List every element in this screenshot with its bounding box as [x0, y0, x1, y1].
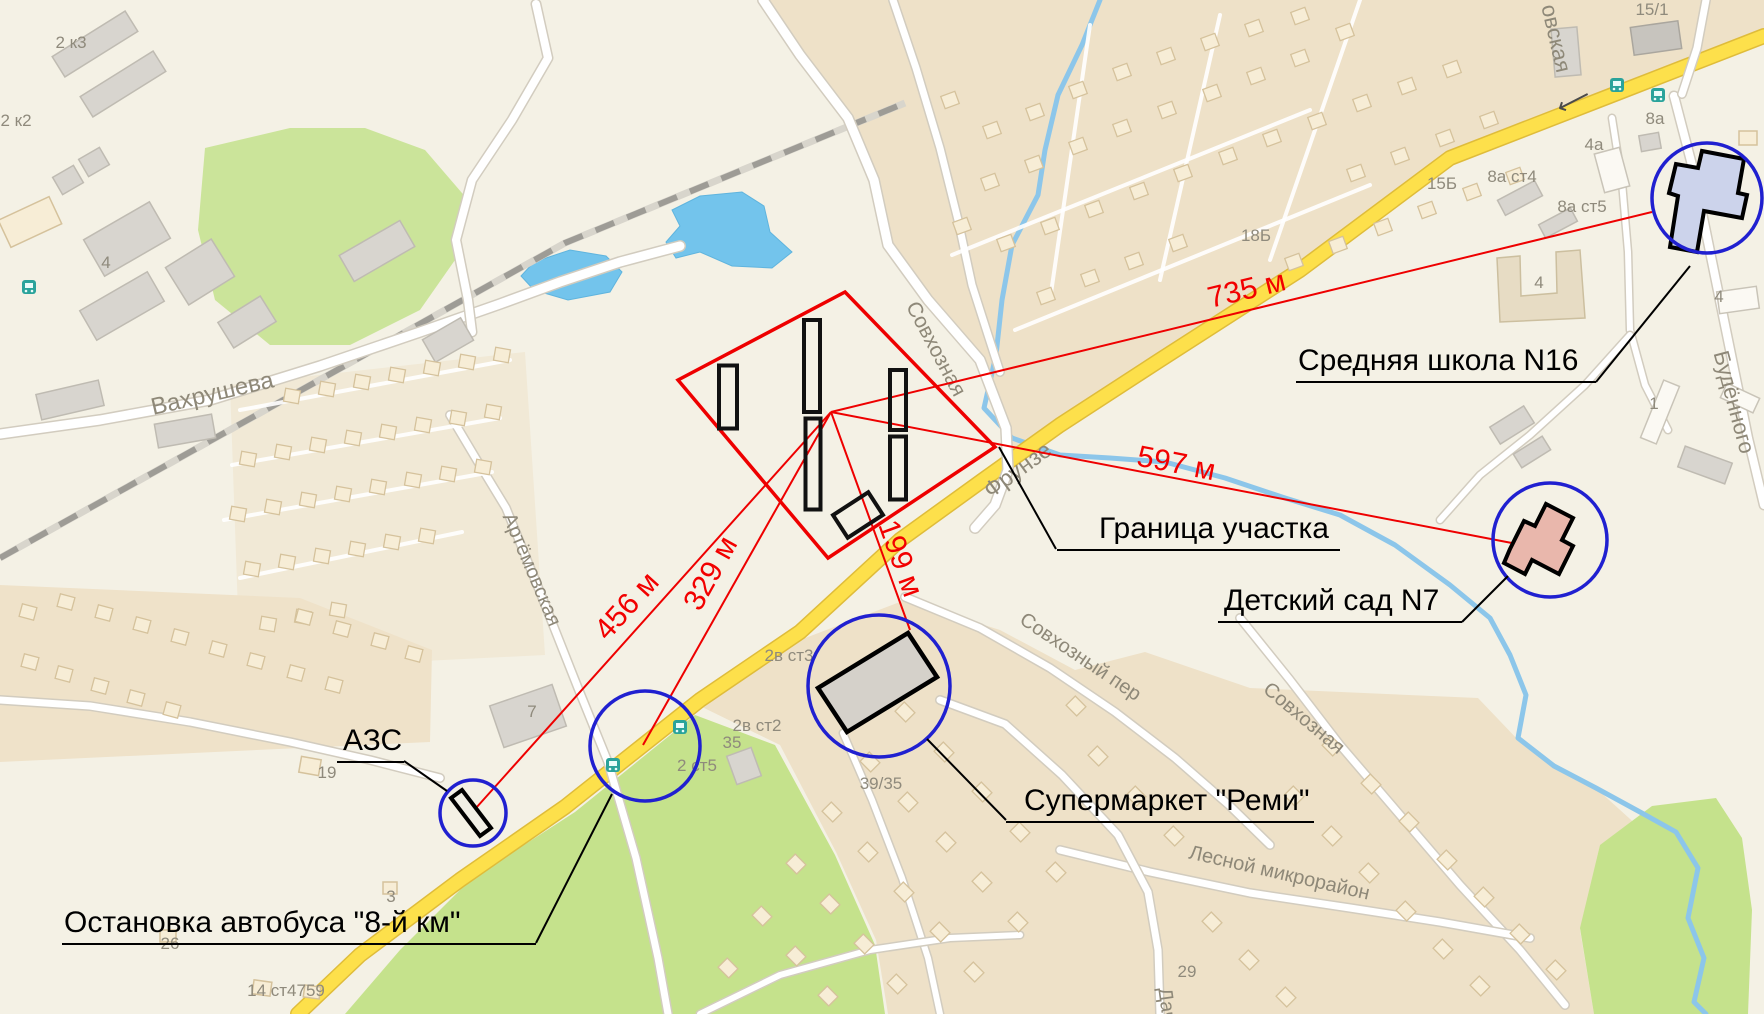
address-label: 8а ст5	[1557, 197, 1606, 216]
address-label: 35	[723, 733, 742, 752]
cottage	[418, 528, 435, 543]
cottage	[274, 444, 291, 459]
cottage	[313, 548, 330, 563]
cottage	[239, 451, 256, 466]
cottage	[369, 479, 386, 494]
cottage	[264, 499, 281, 514]
address-label: 8а	[1646, 109, 1665, 128]
address-label: 18Б	[1241, 226, 1271, 245]
address-label: 3	[386, 887, 395, 906]
bus-stop-icon	[1610, 78, 1624, 92]
label-bus-stop: Остановка автобуса "8-й км"	[62, 906, 536, 945]
address-label: 7	[527, 702, 536, 721]
address-label: 39/35	[860, 774, 903, 793]
address-label: 15/1	[1635, 0, 1668, 19]
cottage	[423, 360, 440, 375]
cottage	[334, 486, 351, 501]
label-school: Средняя школа N16	[1296, 344, 1596, 383]
address-label: 1	[1649, 394, 1658, 413]
address-label: 2в ст3	[765, 646, 814, 665]
address-label: 4	[101, 253, 110, 272]
cottage	[388, 367, 405, 382]
cottage	[474, 459, 491, 474]
cottage	[458, 354, 475, 369]
cottage	[348, 541, 365, 556]
cottage	[404, 472, 421, 487]
address-label: 15Б	[1427, 174, 1457, 193]
cottage	[439, 466, 456, 481]
cottage	[278, 554, 295, 569]
label-parcel-boundary: Граница участка	[1057, 512, 1340, 551]
cottage	[383, 534, 400, 549]
cottage	[299, 492, 316, 507]
bus-stop-icon	[1651, 88, 1665, 102]
cottage	[493, 347, 510, 362]
cottage	[344, 430, 361, 445]
cottage	[259, 616, 276, 631]
cottage	[449, 410, 466, 425]
address-label: 14 ст4759	[247, 981, 325, 1000]
cottage	[379, 424, 396, 439]
cottage	[229, 506, 246, 521]
cottage	[243, 561, 260, 576]
label-gas-station: АЗС	[337, 724, 404, 763]
label-supermarket: Супермаркет "Реми"	[1006, 784, 1314, 823]
address-label: 19	[318, 763, 337, 782]
building	[1739, 131, 1757, 145]
cottage	[283, 388, 300, 403]
bus-stop-icon	[606, 758, 620, 772]
label-kindergarten: Детский сад N7	[1218, 584, 1462, 623]
address-label: 2 к2	[0, 111, 31, 130]
cottage	[318, 381, 335, 396]
address-label: 29	[1178, 962, 1197, 981]
bus-stop-icon	[22, 280, 36, 294]
address-label: 8а ст4	[1487, 167, 1536, 186]
cottage	[353, 374, 370, 389]
cottage	[414, 417, 431, 432]
address-label: 4	[1714, 287, 1723, 306]
building	[1630, 21, 1681, 55]
cottage	[309, 437, 326, 452]
address-label: 2 к3	[55, 33, 86, 52]
address-label: 4	[1534, 273, 1543, 292]
building	[1639, 132, 1661, 151]
cottage	[484, 404, 501, 419]
address-label: 4а	[1585, 135, 1604, 154]
bus-stop-icon	[673, 720, 687, 734]
map-screenshot: ВахрушеваСовхознаяФрунзеАртёмовскаяБудён…	[0, 0, 1764, 1014]
cottage	[329, 602, 346, 617]
